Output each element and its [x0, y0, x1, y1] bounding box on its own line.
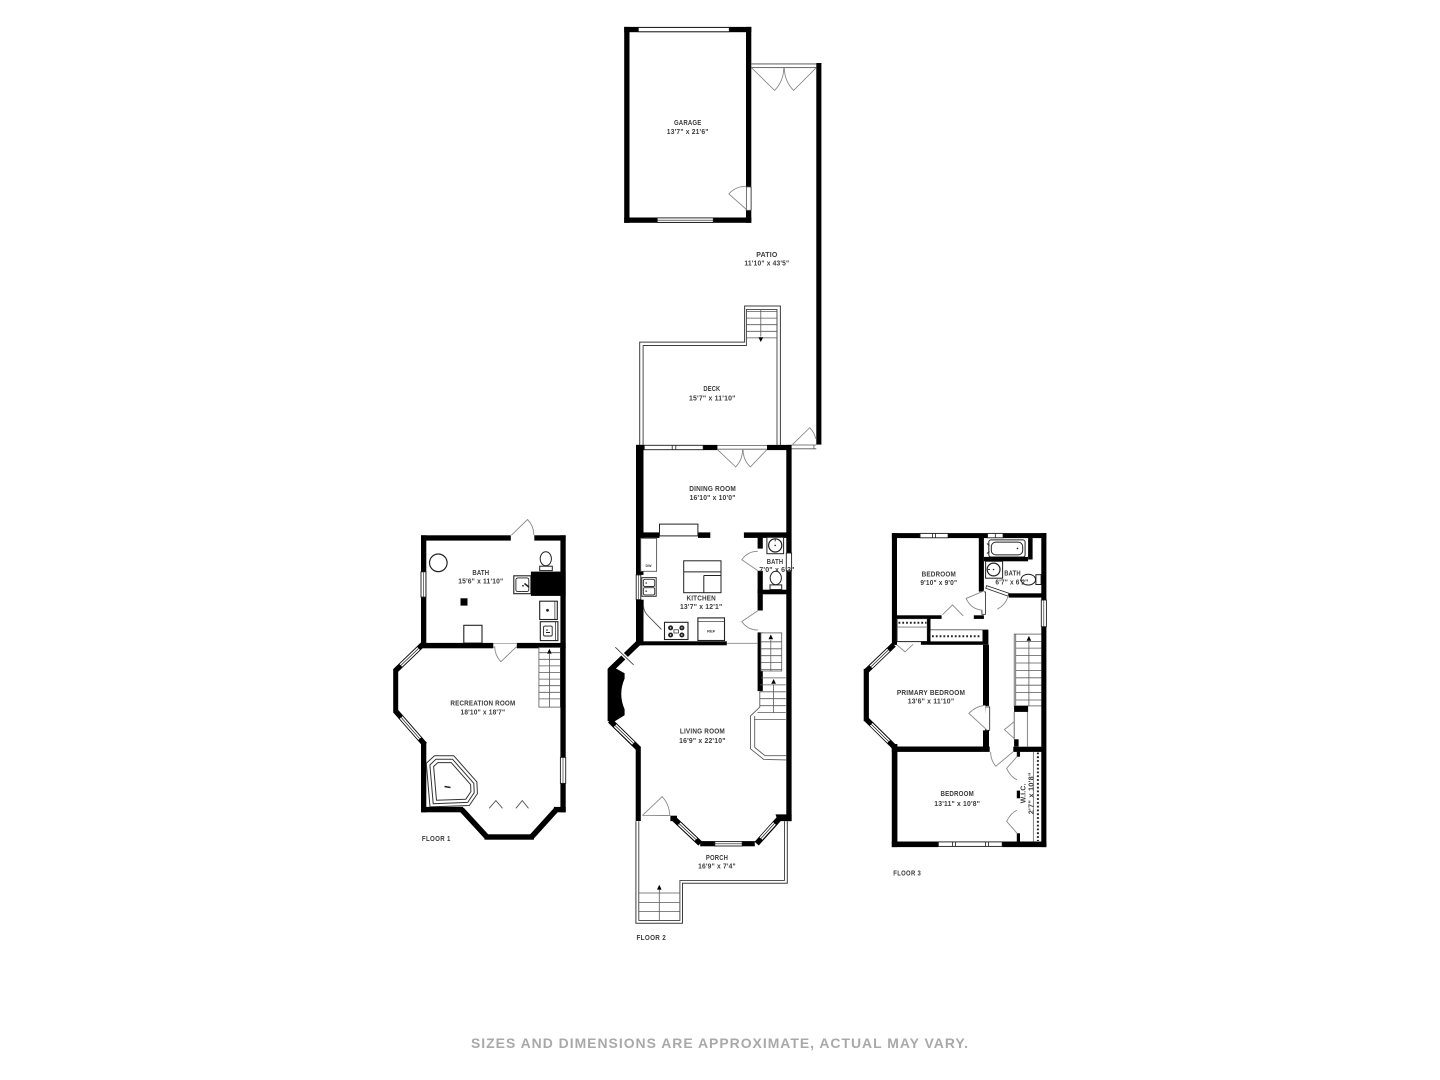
svg-text:7'0" x 6'3": 7'0" x 6'3" [759, 565, 794, 574]
svg-text:DW: DW [646, 564, 653, 568]
svg-text:13'7" x 12'1": 13'7" x 12'1" [680, 602, 723, 611]
svg-text:LIVING ROOM: LIVING ROOM [680, 726, 725, 735]
svg-text:13'7" x 21'6": 13'7" x 21'6" [667, 127, 709, 136]
svg-text:PATIO: PATIO [756, 250, 777, 259]
svg-text:15'6" x 11'10": 15'6" x 11'10" [458, 577, 503, 586]
svg-text:16'9" x 7'4": 16'9" x 7'4" [698, 862, 736, 871]
svg-text:FLOOR 2: FLOOR 2 [637, 933, 667, 942]
svg-text:2'7" x 10'8": 2'7" x 10'8" [1027, 772, 1036, 814]
svg-text:6'7" x 6'2": 6'7" x 6'2" [995, 577, 1028, 586]
svg-text:DINING ROOM: DINING ROOM [689, 484, 736, 493]
svg-text:SIZES AND DIMENSIONS ARE APPRO: SIZES AND DIMENSIONS ARE APPROXIMATE, AC… [471, 1035, 969, 1051]
svg-text:GARAGE: GARAGE [674, 118, 702, 127]
svg-text:9'10" x 9'0": 9'10" x 9'0" [920, 578, 957, 587]
svg-text:15'7" x 11'10": 15'7" x 11'10" [689, 393, 736, 402]
svg-text:16'9" x 22'10": 16'9" x 22'10" [679, 736, 726, 745]
svg-text:FLOOR 3: FLOOR 3 [893, 868, 921, 877]
svg-text:BATH: BATH [1004, 569, 1021, 578]
svg-text:13'6" x 11'10": 13'6" x 11'10" [908, 697, 955, 706]
svg-text:REF: REF [707, 629, 715, 633]
svg-text:11'10" x 43'5": 11'10" x 43'5" [744, 259, 789, 268]
svg-text:DECK: DECK [703, 384, 720, 393]
svg-text:RECREATION ROOM: RECREATION ROOM [450, 698, 515, 707]
svg-text:FLOOR 1: FLOOR 1 [422, 834, 451, 843]
svg-text:13'11" x 10'8": 13'11" x 10'8" [934, 799, 980, 808]
svg-text:18'10" x 18'7": 18'10" x 18'7" [461, 708, 506, 717]
svg-text:PRIMARY BEDROOM: PRIMARY BEDROOM [897, 688, 965, 697]
svg-text:BEDROOM: BEDROOM [941, 789, 974, 798]
svg-text:BEDROOM: BEDROOM [922, 569, 956, 578]
svg-text:16'10" x 10'0": 16'10" x 10'0" [690, 493, 736, 502]
